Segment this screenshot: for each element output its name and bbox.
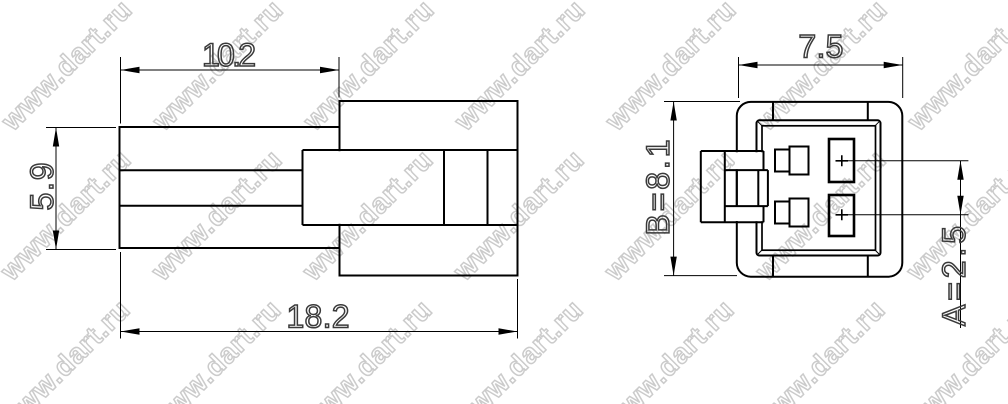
svg-text:A=2.5: A=2.5 <box>936 226 972 326</box>
svg-text:18.2: 18.2 <box>287 299 350 335</box>
svg-text:10.2: 10.2 <box>202 37 256 73</box>
svg-text:B=8.1: B=8.1 <box>640 140 676 236</box>
svg-text:7.5: 7.5 <box>798 29 843 65</box>
svg-text:5.9: 5.9 <box>24 163 60 211</box>
